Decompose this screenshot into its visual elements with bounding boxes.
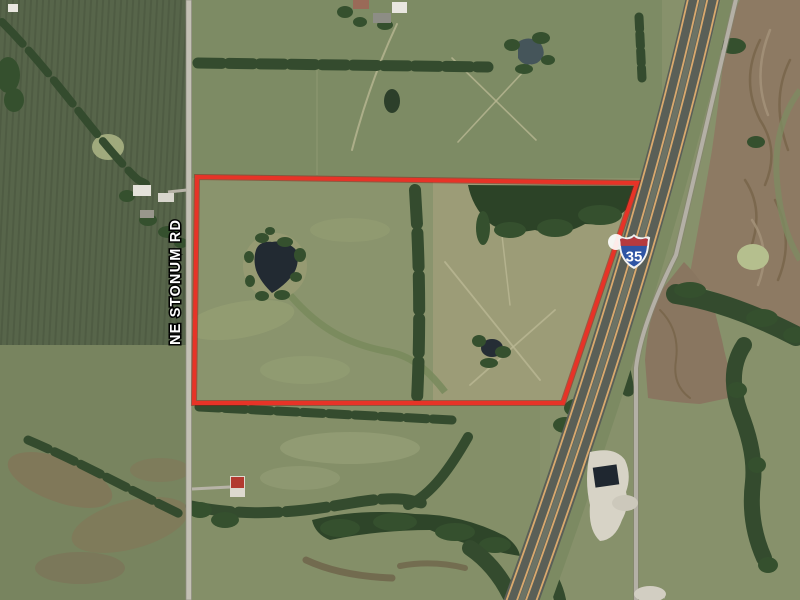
red-roof-barn (230, 476, 245, 497)
small-building-nw (8, 4, 18, 12)
shield-number: 35 (626, 249, 643, 266)
road-name-label: NE STONUM RD (168, 219, 184, 345)
west-farm-house (133, 185, 151, 196)
farm-driveway-west (168, 190, 187, 192)
north-farm-building-2 (392, 2, 407, 13)
stonum-road-surface (186, 0, 192, 600)
north-farm-building-1 (353, 0, 369, 9)
north-farm-building-3 (373, 13, 391, 23)
map-viewport[interactable]: NE STONUM RD 35 (0, 0, 800, 600)
farm-driveway-east (192, 487, 230, 489)
tree-ringed-pond (384, 89, 400, 113)
grass-waterway-patch (737, 244, 769, 270)
dark-structure (593, 464, 620, 487)
west-farm-outbuilding (140, 210, 154, 218)
satellite-map: NE STONUM RD 35 (0, 0, 800, 600)
west-farm-shed (158, 193, 174, 202)
